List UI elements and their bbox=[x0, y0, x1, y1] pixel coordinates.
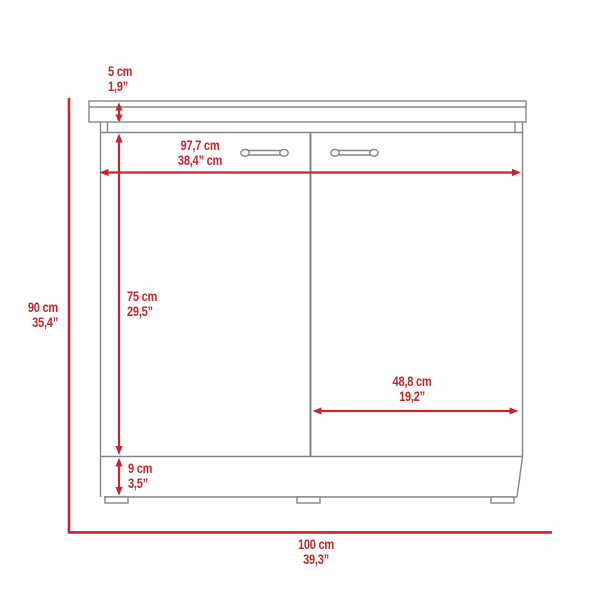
left-door-handle-icon bbox=[241, 149, 288, 156]
door-width-in: 19,2” bbox=[393, 390, 432, 405]
cabinet-dimension-diagram: 5 cm 1,9” 97,7 cm 38,4” cm 90 cm 35,4” 7… bbox=[0, 0, 600, 600]
arrow-base-height bbox=[115, 458, 122, 496]
base-height-cm: 9 cm bbox=[128, 462, 152, 477]
door-width-cm: 48,8 cm bbox=[393, 375, 432, 390]
base-right-edge bbox=[517, 457, 523, 497]
countertop-thickness-cm: 5 cm bbox=[108, 65, 132, 80]
arrow-door-width bbox=[313, 407, 519, 414]
cabinet-feet bbox=[105, 497, 514, 503]
dim-label-door-width: 48,8 cm 19,2” bbox=[393, 375, 432, 404]
overall-height-cm: 90 cm bbox=[10, 301, 58, 316]
right-door-handle-icon bbox=[331, 149, 378, 156]
dim-label-inner-width: 97,7 cm 38,4” cm bbox=[178, 139, 222, 168]
dim-label-overall-width: 100 cm 39,3” bbox=[298, 538, 334, 567]
countertop bbox=[89, 101, 526, 122]
cabinet-body bbox=[101, 133, 523, 498]
dim-label-overall-height: 90 cm 35,4” bbox=[10, 301, 58, 330]
arrow-door-height bbox=[115, 134, 122, 456]
inner-width-in: 38,4” cm bbox=[178, 154, 222, 169]
overall-width-cm: 100 cm bbox=[298, 538, 334, 553]
base-height-in: 3,5” bbox=[128, 477, 152, 492]
inner-width-cm: 97,7 cm bbox=[178, 139, 222, 154]
door-height-in: 29,5” bbox=[127, 305, 157, 320]
dim-label-door-height: 75 cm 29,5” bbox=[127, 290, 157, 319]
side-panel-reveal bbox=[101, 122, 523, 133]
diagram-drawing bbox=[0, 0, 600, 600]
door-height-cm: 75 cm bbox=[127, 290, 157, 305]
dim-label-base-height: 9 cm 3,5” bbox=[128, 462, 152, 491]
countertop-thickness-in: 1,9” bbox=[108, 80, 132, 95]
dim-label-countertop-thickness: 5 cm 1,9” bbox=[108, 65, 132, 94]
overall-height-in: 35,4” bbox=[10, 316, 58, 331]
overall-width-in: 39,3” bbox=[298, 553, 334, 568]
